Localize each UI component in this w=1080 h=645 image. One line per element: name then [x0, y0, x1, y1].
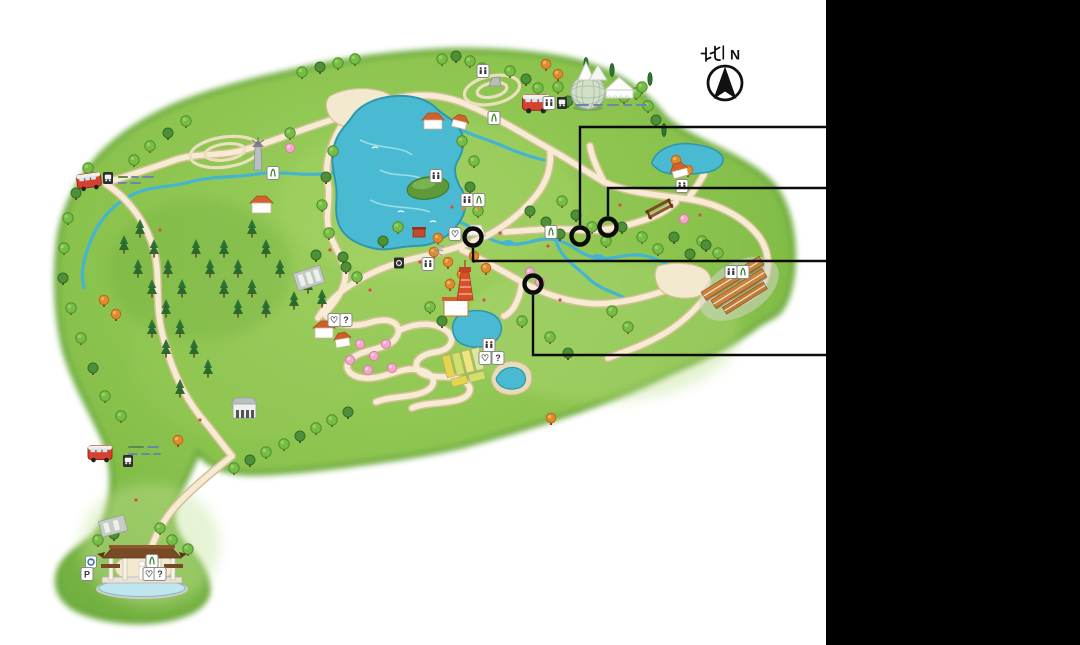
restroom-sign [725, 266, 737, 279]
svg-text:?: ? [157, 569, 163, 579]
camera-sign [394, 258, 404, 269]
question-sign: ? [492, 352, 504, 365]
heart-sign: ♡ [143, 568, 155, 581]
bus-stop-sign [557, 97, 567, 109]
restroom-sign [461, 194, 473, 207]
svg-text:P: P [84, 569, 90, 579]
compass-divider [723, 46, 725, 60]
garden-sign [737, 266, 749, 279]
svg-text:♡: ♡ [451, 229, 459, 239]
garden-sign [488, 112, 500, 125]
red-kiosk [412, 227, 426, 237]
screenshot-canvas: ♡ ♡ ? ♡ ? P ♡ ? N [0, 0, 1080, 645]
entrance-gate [96, 545, 188, 599]
garden-sign [545, 226, 557, 239]
question-sign: ? [340, 314, 352, 327]
restroom-sign [477, 65, 489, 78]
right-black-panel [826, 0, 1080, 645]
heart-sign: ♡ [479, 352, 491, 365]
svg-text:?: ? [343, 315, 349, 325]
shuttle-bus-south [88, 446, 112, 463]
compass-label-north-cn [702, 47, 721, 62]
garden-sign [267, 167, 279, 180]
bus-stop-sign [123, 455, 133, 467]
heart-sign: ♡ [449, 228, 461, 241]
restroom-sign [422, 258, 434, 271]
accessibility-sign [86, 556, 97, 568]
svg-text:♡: ♡ [330, 315, 338, 325]
grey-hall [231, 398, 257, 418]
question-sign: ? [154, 568, 166, 581]
svg-text:♡: ♡ [481, 353, 489, 363]
restroom-sign [543, 97, 555, 110]
bus-stop-sign [103, 172, 113, 184]
heart-sign: ♡ [328, 314, 340, 327]
compass-needle [714, 67, 737, 100]
compass-label-north-en: N [730, 47, 740, 63]
restroom-sign [483, 339, 495, 352]
compass: N [702, 46, 743, 101]
parking-sign: P [81, 568, 93, 581]
svg-text:♡: ♡ [145, 569, 153, 579]
garden-sign [473, 194, 485, 207]
garden-sign [146, 555, 158, 568]
svg-text:?: ? [495, 353, 501, 363]
restroom-sign [430, 170, 442, 183]
restroom-sign [676, 180, 688, 193]
